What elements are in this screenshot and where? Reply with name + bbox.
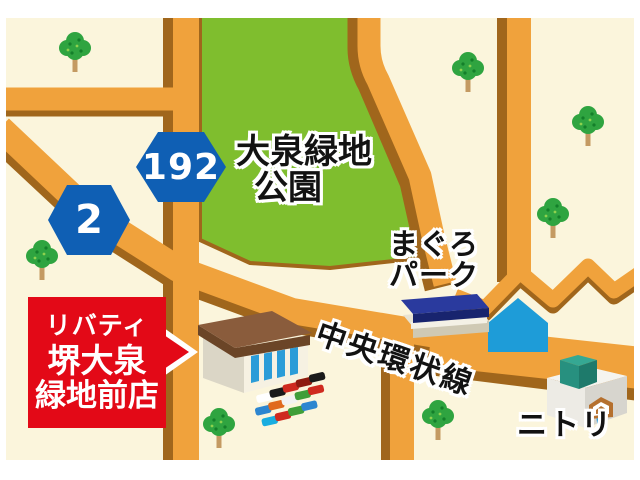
store-access-map: 192 2 大泉緑地 公園 まぐろ パーク 中央環状線 ニトリ リバティ 堺大泉… [0, 0, 640, 480]
maguro-park-building-icon [401, 294, 489, 338]
store-callout-line3: 緑地前店 [35, 381, 159, 412]
park-name-line2: 公園 [236, 170, 372, 206]
park-name-label: 大泉緑地 公園 [236, 134, 372, 206]
route-badge-192: 192 [136, 132, 226, 202]
store-callout-line2: 堺大泉 [48, 344, 147, 377]
maguro-park-label: まぐろ パーク [389, 229, 479, 290]
nitori-label: ニトリ [517, 410, 613, 442]
store-callout-line1: リバティ [46, 313, 149, 338]
park-name-line1: 大泉緑地 [236, 134, 372, 170]
maguro-park-line1: まぐろ [389, 229, 479, 260]
store-callout: リバティ 堺大泉 緑地前店 [28, 297, 166, 428]
maguro-park-line2: パーク [389, 260, 479, 291]
route-badge-2: 2 [48, 185, 130, 255]
